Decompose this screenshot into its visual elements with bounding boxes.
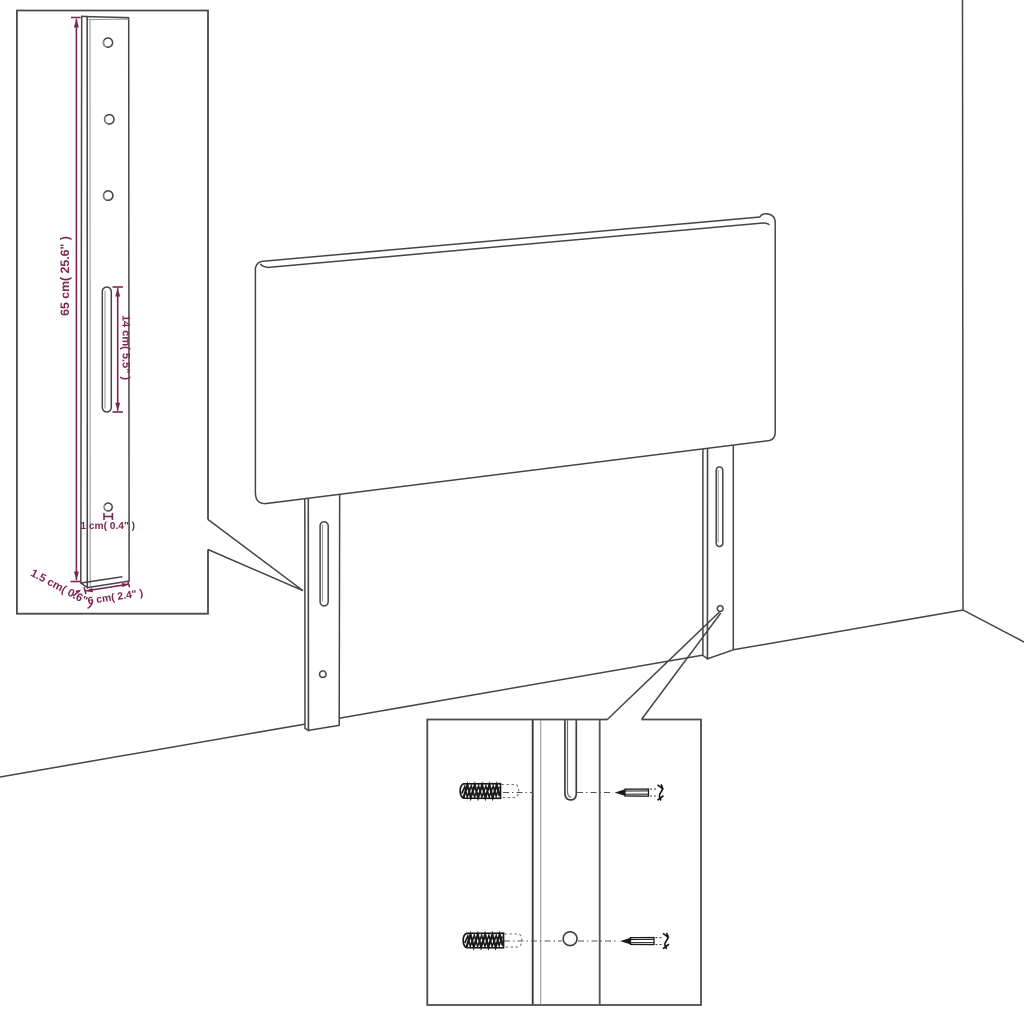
svg-text:14 cm( 5.5" ): 14 cm( 5.5" ) [120,315,132,380]
svg-text:65 cm( 25.6" ): 65 cm( 25.6" ) [58,236,72,316]
svg-text:1 cm( 0.4" ): 1 cm( 0.4" ) [80,521,135,532]
